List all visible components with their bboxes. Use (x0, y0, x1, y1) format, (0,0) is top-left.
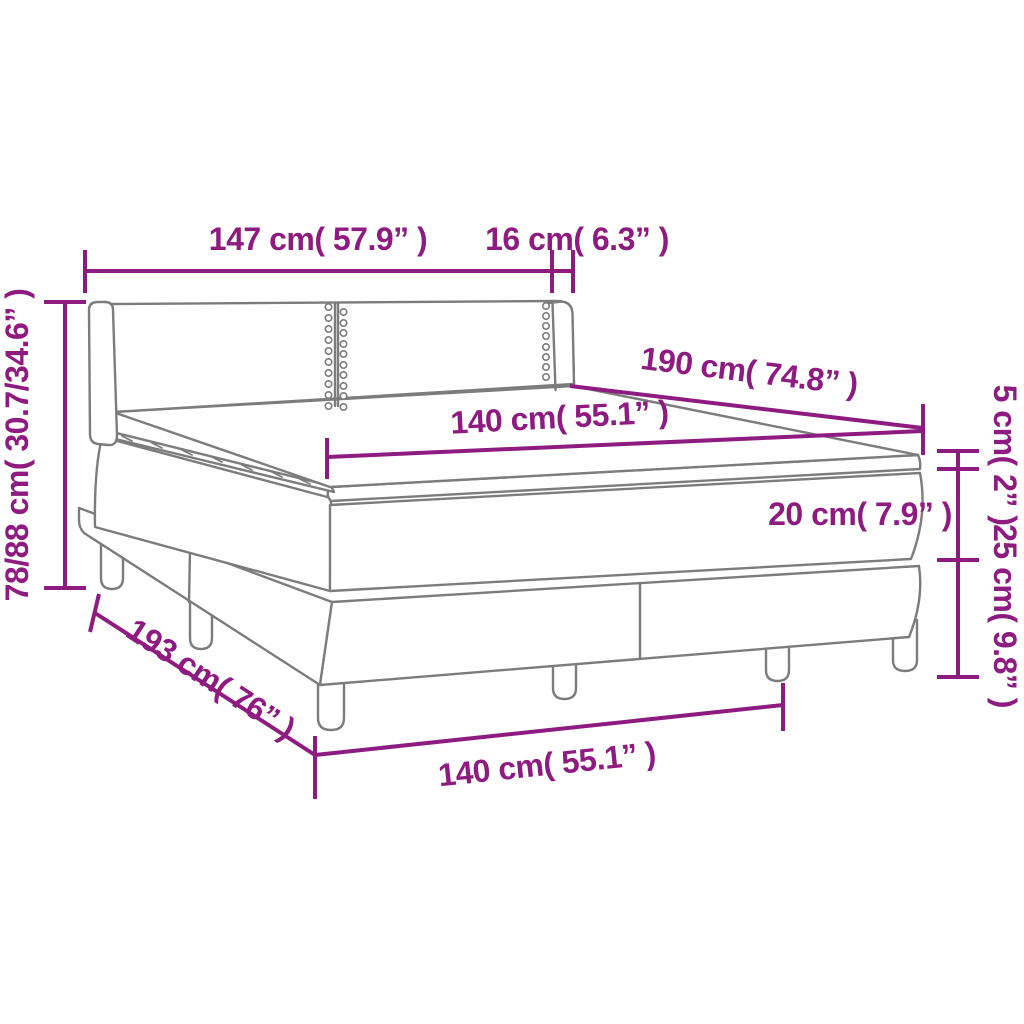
dim-label-bottom-width: 140 cm( 55.1” ) (436, 735, 657, 794)
dim-label-height-range: 78/88 cm( 30.7/34.6” ) (0, 289, 35, 602)
dim-label-mattress-height: 20 cm( 7.9” ) (768, 496, 952, 532)
dim-label-base-height: 25 cm( 9.8” ) (987, 524, 1023, 708)
base-side-divider (189, 549, 190, 602)
dim-label-topper-height: 5 cm( 2” ) (987, 385, 1023, 526)
dim-label-headboard-width: 147 cm( 57.9” ) (209, 221, 427, 257)
headboard-left-wing (89, 302, 117, 445)
bed-diagram-svg: 147 cm( 57.9” ) 16 cm( 6.3” ) 78/88 cm( … (0, 0, 1024, 1024)
dim-label-bed-length: 190 cm( 74.8” ) (639, 340, 860, 402)
dimension-diagram: 147 cm( 57.9” ) 16 cm( 6.3” ) 78/88 cm( … (0, 0, 1024, 1024)
dim-label-wing-depth: 16 cm( 6.3” ) (485, 221, 669, 257)
